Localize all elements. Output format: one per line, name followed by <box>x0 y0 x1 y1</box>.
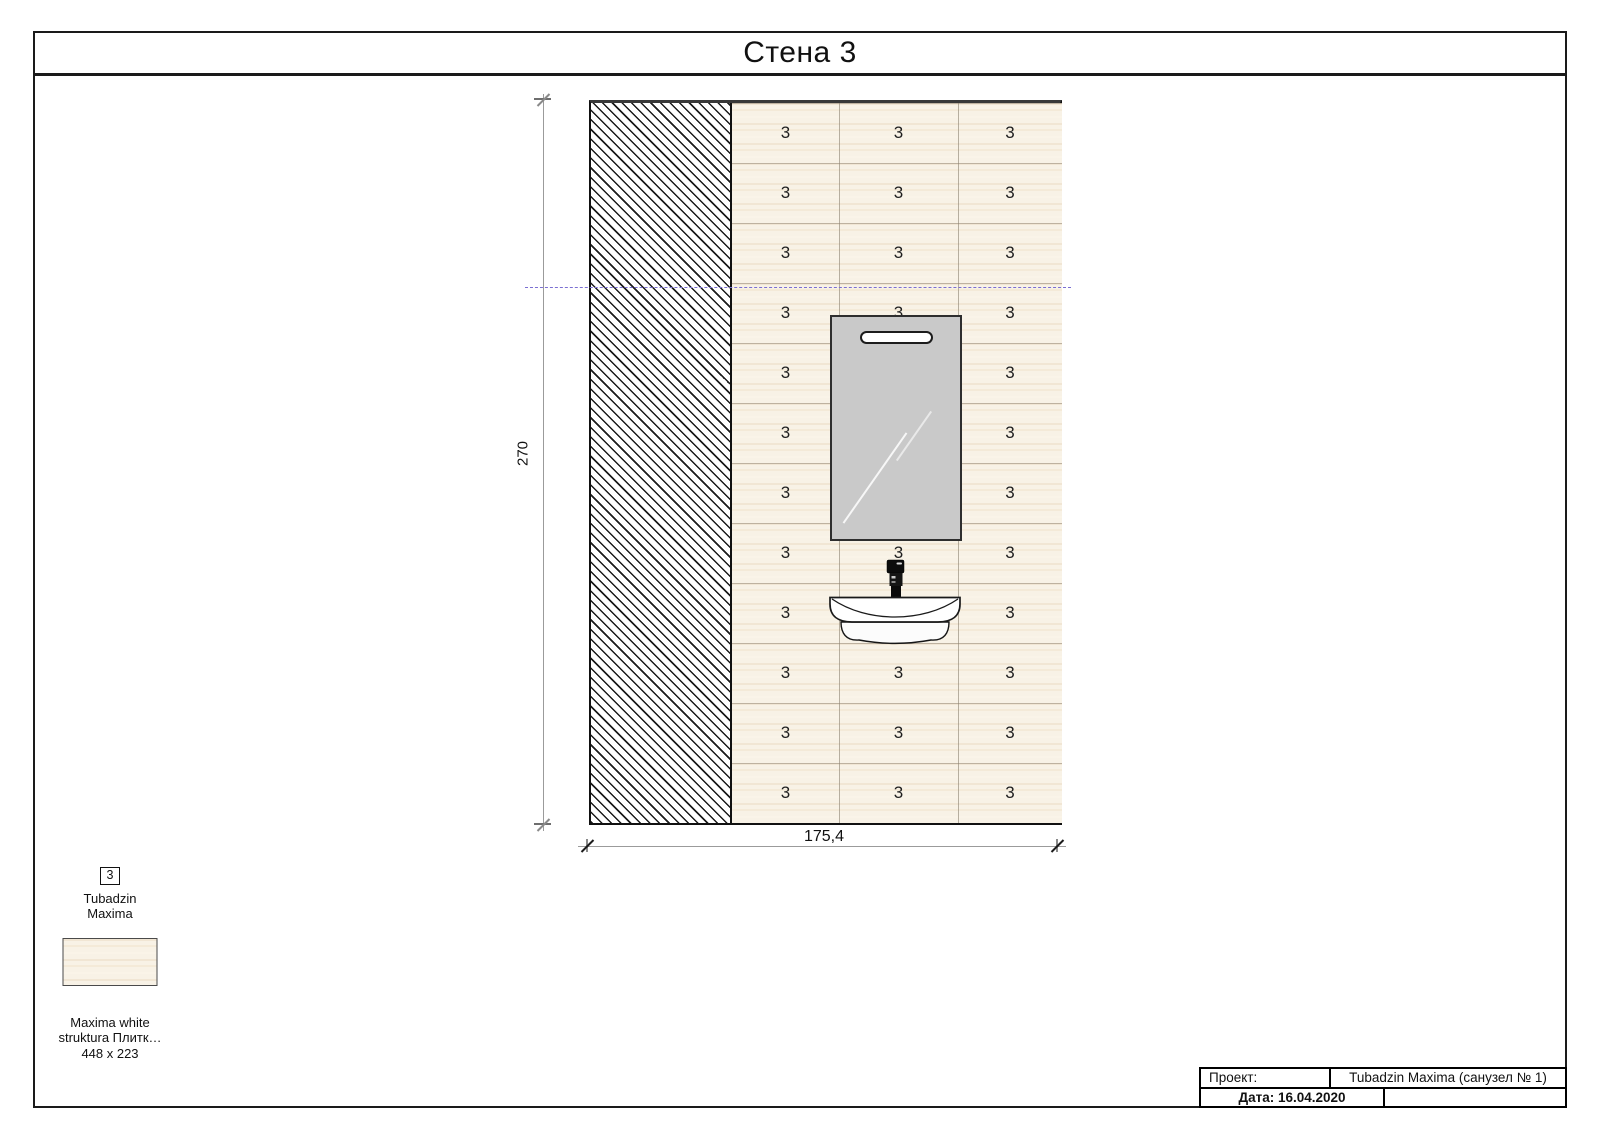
tile-label: 3 <box>1005 603 1014 623</box>
tile-label: 3 <box>781 123 790 143</box>
date-value: Дата: 16.04.2020 <box>1201 1089 1385 1107</box>
tile-label: 3 <box>1005 423 1014 443</box>
tile-label: 3 <box>1005 243 1014 263</box>
legend-tile-size: 448 x 223 <box>35 1046 185 1061</box>
tile-label: 3 <box>894 243 903 263</box>
tile-label: 3 <box>781 363 790 383</box>
tile-label: 3 <box>1005 363 1014 383</box>
tile-label: 3 <box>781 663 790 683</box>
empty-cell <box>1385 1089 1565 1107</box>
dimension-line-vertical <box>543 94 544 831</box>
legend-tile-sample <box>63 938 158 986</box>
tile-label: 3 <box>781 243 790 263</box>
tile-label: 3 <box>781 543 790 563</box>
tile-label: 3 <box>894 663 903 683</box>
tile-label: 3 <box>1005 183 1014 203</box>
tile-label: 3 <box>781 483 790 503</box>
tile-label: 3 <box>1005 663 1014 683</box>
legend-tile-number: 3 <box>100 867 120 885</box>
mirror-slot <box>860 331 933 344</box>
tile-label: 3 <box>894 783 903 803</box>
project-label: Проект: <box>1201 1069 1331 1087</box>
tile-label: 3 <box>1005 123 1014 143</box>
hatch-area <box>591 103 732 823</box>
tile-label: 3 <box>894 723 903 743</box>
tile-label: 3 <box>781 183 790 203</box>
sink <box>825 594 965 646</box>
title-block: Проект: Tubadzin Maxima (санузел № 1) Да… <box>1199 1067 1567 1108</box>
tile-label: 3 <box>781 603 790 623</box>
reference-line <box>525 287 1071 288</box>
tile-label: 3 <box>894 183 903 203</box>
tile-label: 3 <box>1005 303 1014 323</box>
dimension-width-label: 175,4 <box>790 828 858 846</box>
tile-label: 3 <box>1005 783 1014 803</box>
page: Стена 3 33333333333333333333333333333333… <box>0 0 1600 1138</box>
legend-product-name: Maxima white struktura Плитк… <box>25 1015 195 1045</box>
dimension-height-label: 270 <box>515 434 532 474</box>
tile-label: 3 <box>781 723 790 743</box>
wall-drawing: 333333333333333333333333333333333333 <box>589 100 1062 825</box>
tile-label: 3 <box>1005 723 1014 743</box>
legend-brand: Tubadzin Maxima <box>35 891 185 921</box>
mirror <box>830 315 962 541</box>
legend: 3 Tubadzin Maxima Maxima white struktura… <box>35 860 185 1075</box>
mirror-reflection <box>896 411 932 461</box>
project-value: Tubadzin Maxima (санузел № 1) <box>1331 1069 1565 1087</box>
mirror-reflection <box>843 432 908 523</box>
tile-label: 3 <box>1005 483 1014 503</box>
tile-label: 3 <box>781 783 790 803</box>
tile-label: 3 <box>781 423 790 443</box>
tile-label: 3 <box>1005 543 1014 563</box>
page-title: Стена 3 <box>33 36 1567 70</box>
dimension-line-horizontal <box>578 846 1066 847</box>
tile-label: 3 <box>781 303 790 323</box>
tile-label: 3 <box>894 123 903 143</box>
